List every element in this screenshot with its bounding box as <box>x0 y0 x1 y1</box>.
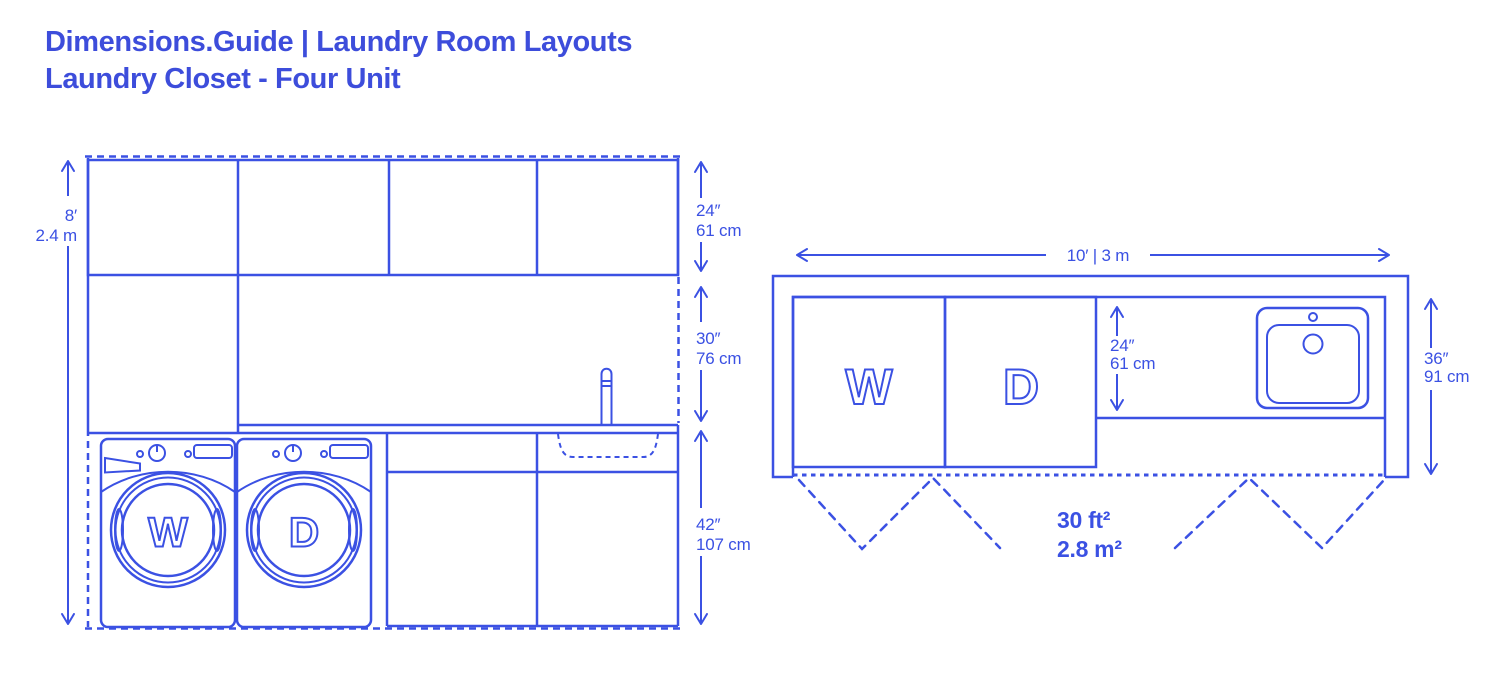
upper-cabinets <box>88 160 678 275</box>
laundry-closet-diagram: W D 8′ 2.4 m 24″ <box>0 0 1500 700</box>
backsplash-dim-primary: 30″ <box>696 329 721 348</box>
washer-front: W <box>101 439 235 627</box>
washer-letter: W <box>148 509 188 556</box>
area-imperial: 30 ft² <box>1057 507 1111 533</box>
dryer-front: D <box>237 439 371 627</box>
elevation-wall-outline <box>85 157 681 629</box>
dimension-total-height: 8′ 2.4 m <box>35 161 77 624</box>
faucet-icon <box>602 369 612 425</box>
sink-basin-hidden <box>558 434 658 457</box>
base-cabinets <box>387 158 678 626</box>
drain-icon <box>1304 335 1323 354</box>
dimension-upper-cabinet: 24″ 61 cm <box>696 162 741 271</box>
washer-indicator-dot <box>185 451 191 457</box>
plan-diagram: W D 10′ | 3 m 24″ 61 cm <box>773 246 1469 562</box>
dryer-indicator-dot <box>273 451 279 457</box>
room-depth-primary: 36″ <box>1424 349 1449 368</box>
dryer-display <box>330 445 368 458</box>
dryer-plan-letter: D <box>1003 359 1039 415</box>
upper-dim-primary: 24″ <box>696 201 721 220</box>
height-dim-primary: 8′ <box>65 206 77 225</box>
backsplash-dim-secondary: 76 cm <box>696 349 741 368</box>
dryer-indicator-dot <box>321 451 327 457</box>
sink-plan <box>1257 308 1368 408</box>
washer-display <box>194 445 232 458</box>
washer-plan-letter: W <box>845 359 893 415</box>
dimension-counter-depth: 24″ 61 cm <box>1110 307 1155 410</box>
upper-dim-secondary: 61 cm <box>696 221 741 240</box>
dimension-room-depth: 36″ 91 cm <box>1424 299 1469 474</box>
dimension-backsplash: 30″ 76 cm <box>696 287 741 421</box>
dimension-base-cabinet: 42″ 107 cm <box>696 431 751 624</box>
bifold-door-swing-left <box>799 478 1000 549</box>
elevation-diagram: W D 8′ 2.4 m 24″ <box>35 157 750 629</box>
area-metric: 2.8 m² <box>1057 536 1122 562</box>
dryer-body-seam <box>237 472 371 492</box>
tall-cabinet-column <box>88 275 238 433</box>
base-dim-secondary: 107 cm <box>696 535 751 554</box>
washer-dispenser-drawer <box>105 458 140 473</box>
height-dim-secondary: 2.4 m <box>35 226 77 245</box>
washer-body-seam <box>101 472 235 492</box>
base-dim-primary: 42″ <box>696 515 721 534</box>
dimension-plan-width: 10′ | 3 m <box>797 246 1389 265</box>
faucet-hole-icon <box>1309 313 1317 321</box>
area-label: 30 ft² 2.8 m² <box>1057 507 1122 562</box>
washer-indicator-dot <box>137 451 143 457</box>
countertop-elevation <box>238 425 678 433</box>
counter-depth-secondary: 61 cm <box>1110 354 1155 373</box>
dryer-letter: D <box>289 509 319 556</box>
room-depth-secondary: 91 cm <box>1424 367 1469 386</box>
plan-width-label: 10′ | 3 m <box>1067 246 1130 265</box>
bifold-door-swing-right <box>1175 478 1384 548</box>
counter-depth-primary: 24″ <box>1110 336 1135 355</box>
